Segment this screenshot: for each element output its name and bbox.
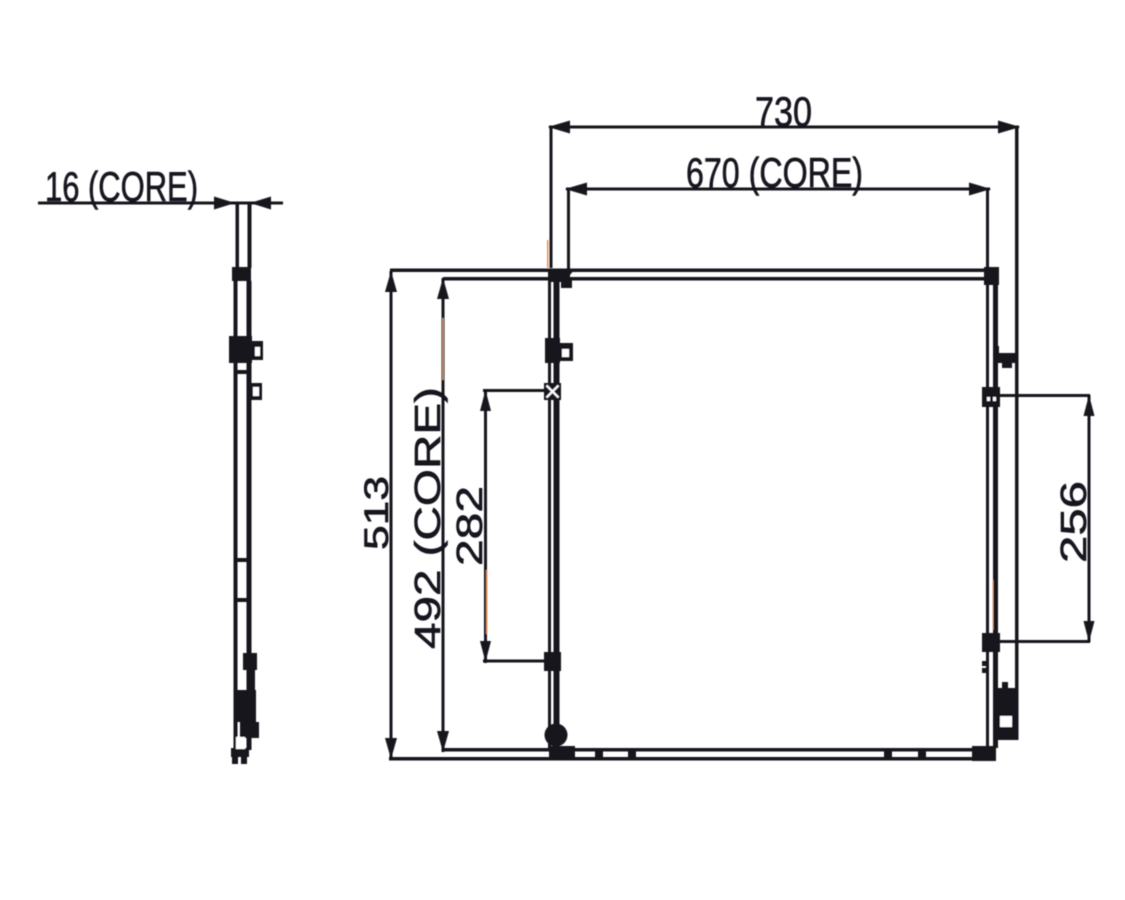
svg-text:513: 513	[358, 476, 396, 550]
svg-text:282: 282	[449, 486, 490, 566]
svg-text:16 (CORE): 16 (CORE)	[45, 163, 198, 210]
svg-text:256: 256	[1053, 481, 1094, 563]
svg-text:492 (CORE): 492 (CORE)	[407, 387, 448, 649]
svg-text:730: 730	[755, 88, 812, 135]
svg-text:670 (CORE): 670 (CORE)	[686, 149, 863, 196]
